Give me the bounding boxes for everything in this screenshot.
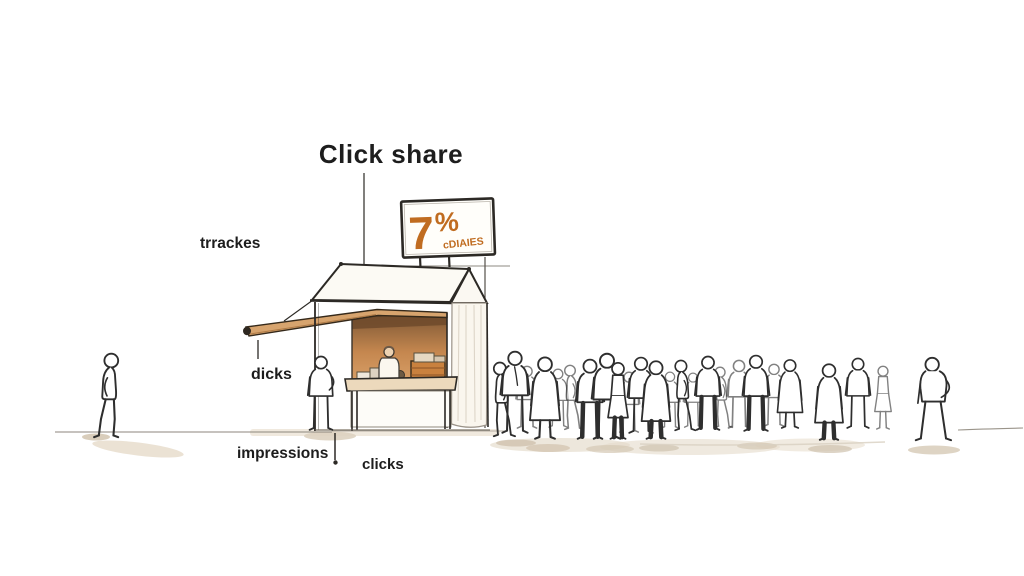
sign-percent-symbol: % [434, 207, 459, 238]
awning-tip-cap [243, 327, 251, 335]
label-clicks: clicks [362, 456, 404, 473]
counter-front [351, 391, 451, 427]
person-figure [777, 360, 802, 428]
person-figure [845, 358, 870, 427]
sign-percent-value: 7 [407, 207, 434, 260]
label-awning-clicks: dicks [251, 366, 292, 383]
sketch-scene: 7 % cDIAIES Click share trrackes dicks i… [0, 0, 1024, 576]
person-figure [94, 354, 118, 437]
impressions-arrow-dot [333, 460, 337, 464]
tent-curtain [452, 303, 488, 427]
counter-top [345, 377, 457, 391]
person-figure [815, 364, 843, 440]
crowd [94, 352, 951, 440]
person-figure [916, 358, 951, 440]
label-trackers: trrackes [200, 235, 260, 252]
page-title: Click share [319, 139, 463, 169]
ground-shadows [82, 429, 960, 461]
sign-board: 7 % cDIAIES [401, 198, 495, 268]
label-impressions: impressions [237, 445, 328, 462]
awning-support-line [284, 300, 313, 321]
person-figure [875, 366, 892, 429]
market-stall [243, 262, 490, 431]
person-figure [742, 356, 769, 431]
person-figure [308, 357, 334, 430]
stall-roof [312, 264, 469, 302]
illustration-canvas: 7 % cDIAIES Click share trrackes dicks i… [0, 0, 1024, 576]
